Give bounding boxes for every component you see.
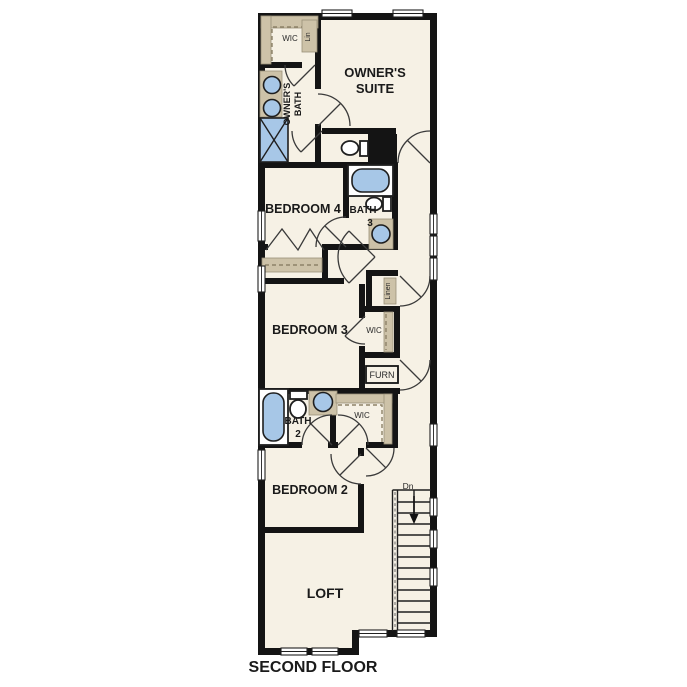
bath2-toilet [290, 391, 307, 418]
bath3-tub [348, 165, 393, 196]
window-left-bedroom4 [258, 211, 265, 241]
window-right-stair-3 [430, 568, 437, 586]
wall-toilet-nook-top [322, 128, 396, 134]
wall-wic3-top [359, 306, 400, 312]
wall-wic2-right [392, 394, 398, 448]
stairs-dn-label: Dn [403, 481, 414, 491]
wic2-shelf-right [384, 394, 392, 444]
bath2-sink [314, 393, 333, 412]
window-right-4 [430, 424, 437, 446]
closet4-shelf [262, 258, 322, 272]
bedroom2-label: BEDROOM 2 [272, 483, 348, 497]
bath3-sink [372, 225, 390, 243]
window-right-2 [430, 236, 437, 256]
bedroom3-label: BEDROOM 3 [272, 323, 348, 337]
window-right-3 [430, 258, 437, 280]
wall-bedroom3-top [258, 278, 344, 284]
owners-bath-label-line2: BATH [293, 92, 303, 116]
floor-caption: SECOND FLOOR [249, 659, 378, 676]
chase-black-box [368, 134, 397, 164]
owners-bath-sink-2 [264, 100, 281, 117]
wic-owner-label: WIC [282, 34, 298, 43]
loft-label: LOFT [307, 585, 344, 601]
owners-wc-toilet [342, 141, 369, 156]
window-bottom-loft-2 [312, 648, 338, 655]
window-bottom-loft-1 [281, 648, 307, 655]
wic-bed3-label: WIC [366, 326, 382, 335]
window-right-stair-1 [430, 498, 437, 516]
bath2-label-line1: BATH [284, 416, 311, 427]
bath2-label-line2: 2 [295, 429, 301, 440]
wall-suite-left-lower [315, 124, 321, 166]
owners-suite-label-line1: OWNER'S [344, 65, 406, 80]
wall-bedroom2-bottom [258, 527, 364, 533]
window-left-bedroom2 [258, 450, 265, 480]
window-left-bedroom3 [258, 266, 265, 292]
window-bottom-step-1 [359, 630, 387, 637]
window-right-1 [430, 214, 437, 234]
bath3-label-line1: BATH [349, 205, 376, 216]
wic-bed2-label: WIC [354, 411, 370, 420]
furn-label: FURN [370, 370, 395, 380]
floor-plan-page: OWNER'S SUITE OWNER'S BATH WIC Lin BEDRO… [0, 0, 687, 687]
owners-suite-label-line2: SUITE [356, 81, 395, 96]
linen-label: Linen [385, 282, 392, 299]
wall-wic3-right [394, 306, 400, 358]
wall-bedroom2-right [358, 484, 364, 533]
lin-label: Lin [305, 32, 312, 41]
owners-bath-label-line1: OWNER'S [282, 83, 292, 126]
window-top-1 [322, 10, 352, 17]
bedroom4-label: BEDROOM 4 [265, 202, 341, 216]
owners-bath-sink-1 [264, 77, 281, 94]
wall-wic3-bottom [359, 352, 400, 358]
window-right-stair-2 [430, 530, 437, 548]
bath3-label-line2: 3 [367, 218, 373, 229]
wall-bedroom3-right-upper [359, 284, 365, 318]
wall-wic2-bottom-stub [366, 442, 398, 448]
window-top-2 [393, 10, 423, 17]
window-bottom-step-2 [397, 630, 425, 637]
wall-linen-top [366, 270, 398, 276]
wic-owner-shelf-left [261, 16, 271, 64]
floor-plan-svg: OWNER'S SUITE OWNER'S BATH WIC Lin BEDRO… [0, 0, 687, 687]
